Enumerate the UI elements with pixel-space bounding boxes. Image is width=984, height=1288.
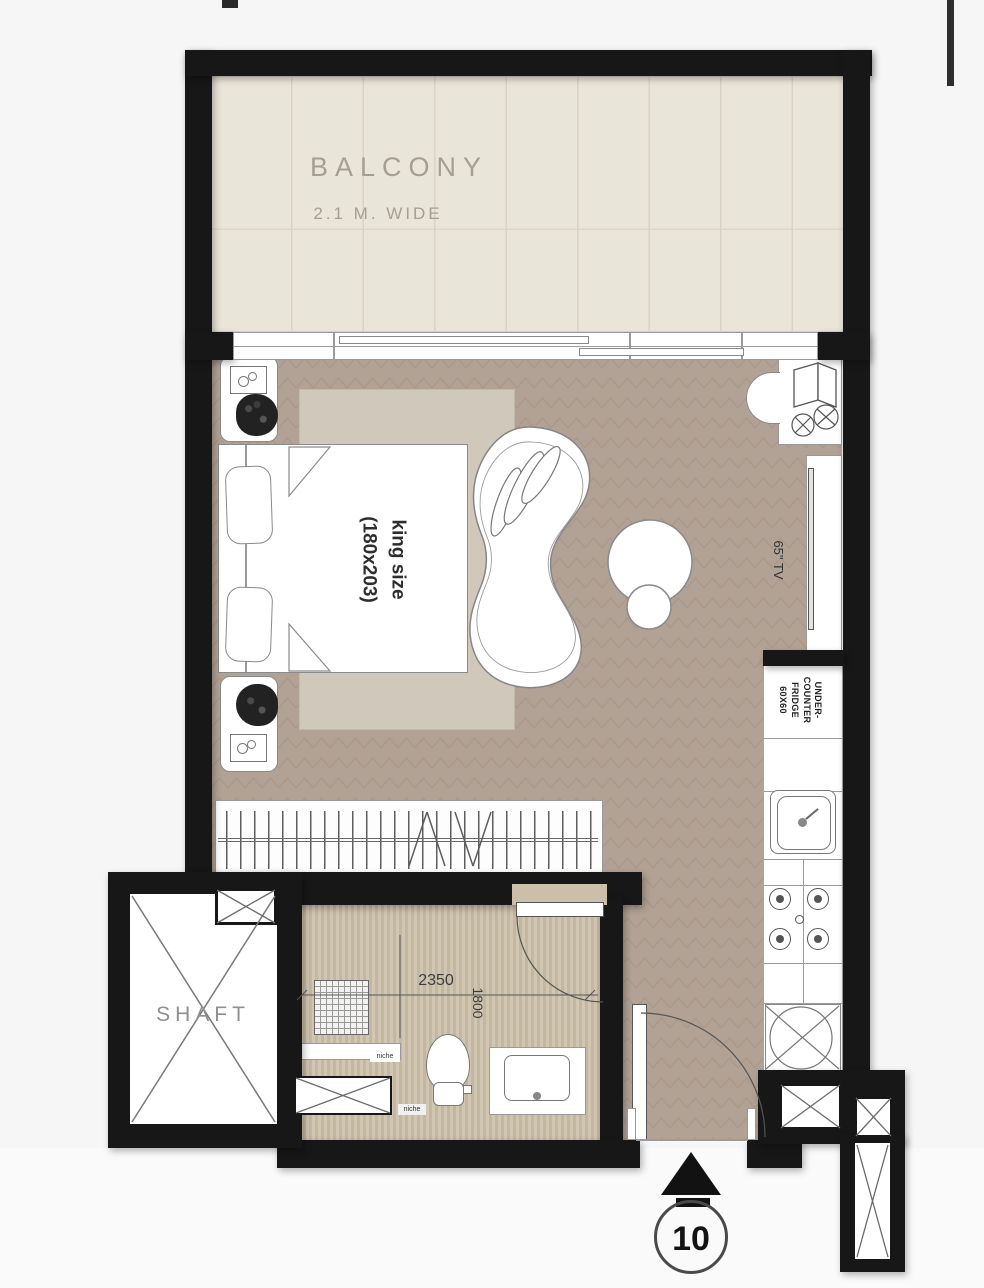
pillow bbox=[225, 465, 274, 545]
niche-label: niche bbox=[370, 1051, 400, 1062]
bath-dim-width: 2350 bbox=[410, 972, 462, 990]
balcony-slider-window bbox=[233, 332, 818, 360]
flush-button bbox=[463, 1085, 472, 1094]
neighbor-wall-line bbox=[947, 0, 954, 86]
plant-icon bbox=[236, 394, 278, 436]
wardrobe bbox=[215, 800, 603, 880]
balcony-label: BALCONY bbox=[284, 150, 514, 184]
washer-icon bbox=[765, 1004, 841, 1071]
vertical-shaft bbox=[855, 1143, 890, 1259]
entrance-arrow-icon bbox=[661, 1152, 721, 1195]
floor-plan: 10 bbox=[0, 0, 984, 1288]
unit-number: 10 bbox=[672, 1220, 710, 1259]
duct-box bbox=[294, 1076, 392, 1115]
vanity-faucet-icon bbox=[533, 1092, 541, 1100]
balcony-width-label: 2.1 M. WIDE bbox=[288, 202, 468, 226]
kitchen-stub bbox=[763, 650, 844, 666]
pillow bbox=[225, 586, 274, 663]
shower-drain-icon bbox=[314, 980, 369, 1035]
niche-label: niche bbox=[398, 1104, 426, 1115]
tv-icon bbox=[808, 468, 814, 630]
bathroom-door bbox=[516, 902, 604, 917]
shaft-label: SHAFT bbox=[128, 1002, 278, 1028]
desk bbox=[778, 355, 842, 445]
tv-label: 65" TV bbox=[771, 530, 787, 590]
wall-right bbox=[843, 50, 870, 1080]
threshold-post bbox=[747, 1108, 756, 1140]
duct-box bbox=[779, 1083, 842, 1130]
wall-top bbox=[185, 50, 872, 76]
wall-bottom bbox=[277, 1140, 640, 1168]
duct-box bbox=[854, 1096, 893, 1138]
closet-rail bbox=[218, 838, 598, 842]
wall-left bbox=[185, 50, 212, 880]
stove-icon bbox=[766, 886, 842, 962]
window-stub-left bbox=[185, 332, 233, 360]
fridge-label: UNDER- COUNTER FRIDGE 60X60 bbox=[777, 673, 823, 727]
threshold-post bbox=[627, 1108, 636, 1140]
slider-leaf bbox=[339, 336, 589, 344]
plant-icon bbox=[236, 684, 278, 726]
wall-bottom-right bbox=[747, 1140, 802, 1168]
slider-leaf bbox=[579, 348, 744, 356]
picture-frame-icon bbox=[230, 366, 267, 394]
bed-size-label: king size (180x203) bbox=[346, 495, 421, 625]
window-stub-right bbox=[818, 332, 870, 360]
background-band bbox=[0, 1148, 984, 1288]
toilet-base bbox=[433, 1082, 464, 1106]
duct-box bbox=[215, 888, 277, 925]
wall-bath-entry bbox=[600, 898, 623, 1143]
kitchen-sink-icon bbox=[770, 790, 836, 854]
neighbor-wall-mark bbox=[222, 0, 238, 8]
threshold-line bbox=[636, 1139, 748, 1141]
unit-number-badge: 10 bbox=[654, 1200, 728, 1274]
bath-dim-height: 1800 bbox=[471, 980, 485, 1026]
picture-frame-icon bbox=[230, 734, 267, 762]
